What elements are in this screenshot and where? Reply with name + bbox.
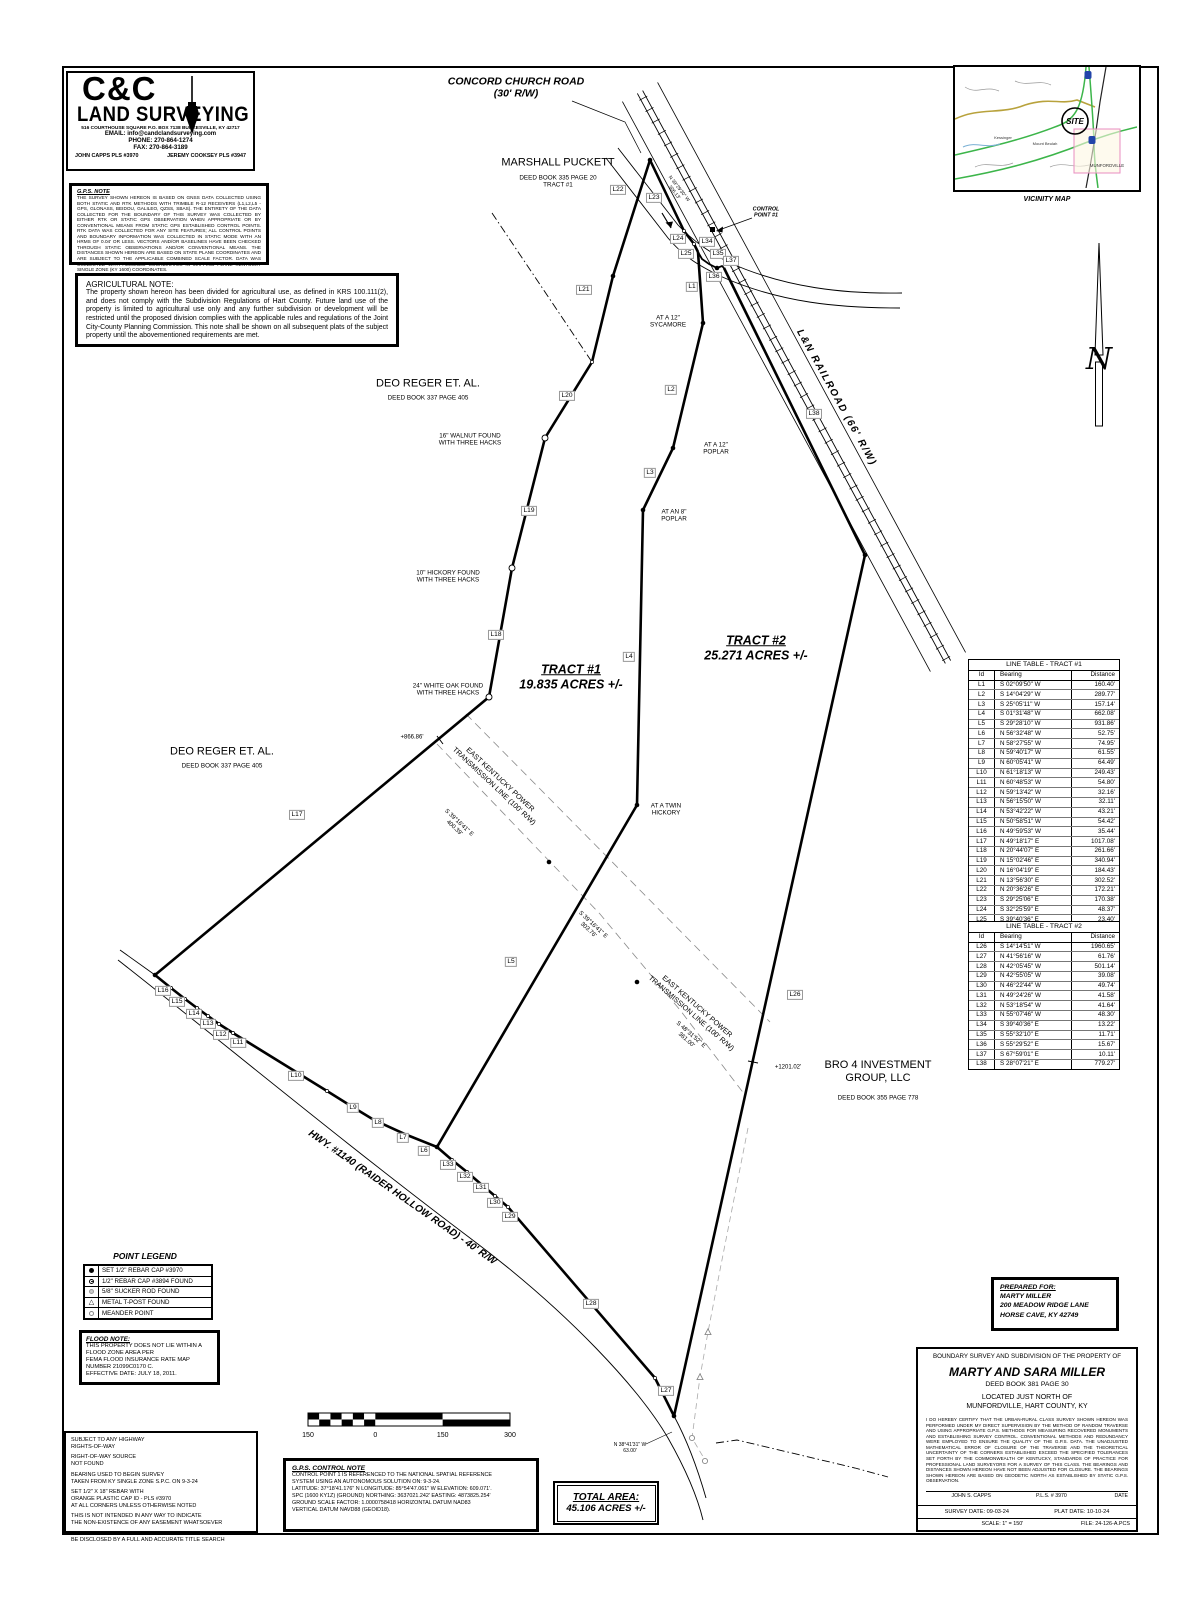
map-label-line: POINT #1 <box>753 213 780 219</box>
company-name-line2: LAND SURVEYING <box>77 101 253 126</box>
title-block: BOUNDARY SURVEY AND SUBDIVISION OF THE P… <box>916 1347 1138 1532</box>
line-id-label-L10: L10 <box>288 1071 304 1081</box>
legend-label: METAL T-POST FOUND <box>99 1299 170 1306</box>
note-line: THE NON-EXISTENCE OF ANY EASEMENT WHATSO… <box>71 1520 251 1527</box>
interstate-shield-icon <box>1089 136 1096 144</box>
line-id-label-L7: L7 <box>397 1133 409 1143</box>
line-id-label-L11: L11 <box>230 1038 246 1048</box>
owner-deo-reger-2-deed: DEED BOOK 337 PAGE 405 <box>182 762 263 769</box>
vicinity-map-caption: VICINITY MAP <box>953 196 1141 203</box>
surveyor-certification: I DO HEREBY CERTIFY THAT THE URBAN-RURAL… <box>918 1417 1136 1484</box>
location-line2: MUNFORDVILLE, HART COUNTY, KY <box>918 1402 1136 1411</box>
control-point-label: CONTROLPOINT #1 <box>753 207 780 220</box>
line-id-label-L13: L13 <box>200 1019 216 1029</box>
line-id-label-L32: L32 <box>457 1172 473 1182</box>
road-bearing-bottom: N 38°41'31" W63.00' <box>614 1443 647 1455</box>
legend-label: 5/8" SUCKER ROD FOUND <box>99 1288 180 1295</box>
map-label-line: BRO 4 INVESTMENT <box>825 1059 932 1072</box>
vicinity-map-drawing: SITEKessingerMount BeulahMUNFORDVILLE <box>955 67 1137 188</box>
line-id-label-L19: L19 <box>521 506 537 516</box>
road-name-concord: CONCORD CHURCH ROAD(30' R/W) <box>448 76 585 101</box>
distance-tick-1201: +1201.02' <box>775 1064 801 1071</box>
monument-white-oak: 24" WHITE OAK FOUNDWITH THREE HACKS <box>413 683 483 698</box>
sucker-rod-icon <box>85 1287 99 1297</box>
agricultural-note-title: AGRICULTURAL NOTE: <box>86 280 388 289</box>
agricultural-note-body: The property shown hereon has been divid… <box>86 289 388 341</box>
general-note: THIS IS NOT INTENDED IN ANY WAY TO INDIC… <box>71 1513 251 1526</box>
owner-bro4-deed: DEED BOOK 355 PAGE 778 <box>838 1094 919 1101</box>
plat-date: PLAT DATE: 10-10-24 <box>1054 1509 1109 1515</box>
surveyor-logo-block: C&C LAND SURVEYING 516 COURTHOUSE SQUARE… <box>66 71 255 171</box>
legend-row: MEANDER POINT <box>85 1308 211 1318</box>
location-line1: LOCATED JUST NORTH OF <box>918 1393 1136 1402</box>
site-label: SITE <box>1066 117 1084 126</box>
surveyor-name-1: JOHN CAPPS PLS #3970 <box>75 153 139 159</box>
line-id-label-L29: L29 <box>502 1212 518 1222</box>
line-id-label-L37: L37 <box>723 256 739 266</box>
vicinity-town-label: MUNFORDVILLE <box>1090 163 1124 168</box>
general-note: BEARING USED TO BEGIN SURVEYTAKEN FROM K… <box>71 1472 251 1485</box>
line-id-label-L12: L12 <box>213 1030 229 1040</box>
line-id-label-L8: L8 <box>372 1118 384 1128</box>
owner-bro4: BRO 4 INVESTMENTGROUP, LLC <box>825 1059 932 1085</box>
line-id-label-L23: L23 <box>646 193 662 203</box>
map-label-line: WITH THREE HACKS <box>416 577 480 584</box>
line-id-label-L14: L14 <box>186 1009 202 1019</box>
file-name: FILE: 24-126-A.PCS <box>1081 1521 1130 1527</box>
gps-control-line: SPC (1600 KY1Z) (GROUND) NORTHING: 36370… <box>292 1493 530 1500</box>
monument-hickory-10: 10" HICKORY FOUNDWITH THREE HACKS <box>416 570 480 585</box>
map-label-line: DEED BOOK 335 PAGE 20 <box>519 175 596 182</box>
note-line: BE DISCLOSED BY A FULL AND ACCURATE TITL… <box>71 1537 251 1544</box>
line-id-label-L17: L17 <box>289 810 305 820</box>
road-bearing-top: N 39°29'30" W306.13' <box>662 175 690 207</box>
railroad-name: L&N RAILROAD (66' R/W) <box>793 328 878 469</box>
map-label-line: WITH THREE HACKS <box>439 440 502 447</box>
map-label-line: AT AN 8" <box>661 509 687 516</box>
line-id-label-L31: L31 <box>473 1183 489 1193</box>
client-address-2: HORSE CAVE, KY 42749 <box>1000 1311 1110 1320</box>
note-line: THIS SURVEY IS SUBJECT TO ANY AND ALL FA… <box>71 1531 251 1538</box>
meander-icon <box>85 1308 99 1318</box>
t-post-icon: △ <box>85 1298 99 1308</box>
signature-name: JOHN S. CAPPS <box>926 1493 1017 1499</box>
map-label-line: 25.271 ACRES +/- <box>704 648 807 663</box>
line-id-label-L30: L30 <box>487 1198 503 1208</box>
survey-date: SURVEY DATE: 09-03-24 <box>945 1509 1009 1515</box>
line-id-label-L20: L20 <box>559 391 575 401</box>
monument-sycamore: AT A 12"SYCAMORE <box>650 315 686 330</box>
map-label-line: POPLAR <box>703 449 729 456</box>
distance-tick-866: +866.86' <box>400 734 423 741</box>
line-id-label-L28: L28 <box>583 1299 599 1309</box>
line-id-label-L34: L34 <box>699 237 715 247</box>
line-id-label-L9: L9 <box>347 1103 359 1113</box>
gps-control-line: SYSTEM USING AN AUTONOMOUS SOLUTION ON: … <box>292 1479 530 1486</box>
note-line: THIS IS NOT INTENDED IN ANY WAY TO INDIC… <box>71 1513 251 1520</box>
gps-control-note-title: G.P.S. CONTROL NOTE <box>292 1465 530 1472</box>
found-rebar-icon <box>85 1277 99 1287</box>
map-label-line: 24" WHITE OAK FOUND <box>413 683 483 690</box>
map-label-line: 19.835 ACRES +/- <box>519 677 622 692</box>
gps-note-box: G.P.S. NOTE THE SURVEY SHOWN HEREON IS B… <box>69 183 269 265</box>
t-post-glyph: △ <box>89 1299 94 1306</box>
line-id-label-L5: L5 <box>505 957 517 967</box>
owner-marshall-puckett-deed: DEED BOOK 335 PAGE 20TRACT #1 <box>519 175 596 190</box>
map-label-line: AT A 12" <box>703 442 729 449</box>
title-block-header: BOUNDARY SURVEY AND SUBDIVISION OF THE P… <box>918 1353 1136 1360</box>
legend-label: 1/2" REBAR CAP #3894 FOUND <box>99 1278 193 1285</box>
map-label-line: AT A TWIN <box>651 803 681 810</box>
owner-marshall-puckett: MARSHALL PUCKETT <box>501 157 614 170</box>
vicinity-town-label: Kessinger <box>994 135 1012 140</box>
signature-date-label: DATE <box>1086 1493 1128 1499</box>
legend-label: MEANDER POINT <box>99 1310 154 1317</box>
gps-control-line: GROUND SCALE FACTOR: 1.0000758418 HORIZO… <box>292 1500 530 1507</box>
map-label-line: WITH THREE HACKS <box>413 690 483 697</box>
map-label-line: EAST KENTUCKY POWER <box>652 967 741 1046</box>
line-id-label-L16: L16 <box>155 986 171 996</box>
map-label-line: CONCORD CHURCH ROAD <box>448 76 585 88</box>
map-label-line: TRACT #1 <box>519 182 596 189</box>
map-label-line: TRACT #1 <box>519 662 622 677</box>
road-name-hwy1140: HWY. #1140 (RAIDER HOLLOW ROAD) - 40' R/… <box>306 1128 499 1268</box>
general-note: SET 1/2" X 18" REBAR WITHORANGE PLASTIC … <box>71 1489 251 1509</box>
monument-twin-hickory: AT A TWINHICKORY <box>651 803 681 818</box>
line-id-label-L36: L36 <box>706 272 722 282</box>
flood-note-body: THIS PROPERTY DOES NOT LIE WITHIN AFLOOD… <box>86 1343 213 1378</box>
map-label-line: 63.00' <box>614 1449 647 1455</box>
property-owner: MARTY AND SARA MILLER <box>918 1365 1136 1379</box>
drawing-scale: SCALE: 1" = 150' <box>924 1521 1081 1527</box>
note-line: RIGHTS-OF-WAY <box>71 1444 251 1451</box>
flood-note-line: NUMBER 21099C0170 C. <box>86 1364 213 1371</box>
transmission-bearing-1: S 39°16'41" E400.39' <box>438 808 475 844</box>
point-legend-title: POINT LEGEND <box>83 1251 207 1261</box>
surveyor-name-2: JEREMY COOKSEY PLS #3947 <box>167 153 246 159</box>
line-id-label-L25: L25 <box>678 249 694 259</box>
flood-note-line: THIS PROPERTY DOES NOT LIE WITHIN A <box>86 1343 213 1350</box>
gps-note-body: THE SURVEY SHOWN HEREON IS BASED ON GNSS… <box>77 195 261 273</box>
map-label-line: +866.86' <box>400 734 423 741</box>
map-label-line: POPLAR <box>661 516 687 523</box>
company-name-line1: C&C <box>82 75 253 103</box>
legend-row: 5/8" SUCKER ROD FOUND <box>85 1287 211 1298</box>
note-line: TAKEN FROM KY SINGLE ZONE S.P.C. ON 9-3-… <box>71 1479 251 1486</box>
line-id-label-L15: L15 <box>169 997 185 1007</box>
scale-bar-number: 300 <box>504 1432 516 1439</box>
tract1-label: TRACT #119.835 ACRES +/- <box>519 662 622 692</box>
note-line: SET 1/2" X 18" REBAR WITH <box>71 1489 251 1496</box>
line-id-label-L3: L3 <box>644 468 656 478</box>
line-id-label-L2: L2 <box>665 385 677 395</box>
general-note: THIS SURVEY IS SUBJECT TO ANY AND ALL FA… <box>71 1531 251 1544</box>
gps-control-line: VERTICAL DATUM NAVD88 (GEOID18). <box>292 1507 530 1514</box>
flood-note-line: EFFECTIVE DATE: JULY 18, 2011. <box>86 1371 213 1378</box>
legend-row: SET 1/2" REBAR CAP #3970 <box>85 1266 211 1277</box>
interstate-shield-icon <box>1085 71 1092 79</box>
map-label-line: TRANSMISSION LINE (100' R/W) <box>451 745 538 827</box>
legend-row: 1/2" REBAR CAP #3894 FOUND <box>85 1277 211 1288</box>
note-line: ORANGE PLASTIC CAP ID - PLS #3970 <box>71 1496 251 1503</box>
signature-pls: P.L.S. # 3970 <box>1017 1493 1087 1499</box>
found-rebar-glyph <box>89 1279 94 1284</box>
map-label-line: MARSHALL PUCKETT <box>501 157 614 170</box>
line-id-label-L21: L21 <box>576 285 592 295</box>
map-label-line: HWY. #1140 (RAIDER HOLLOW ROAD) - 40' R/… <box>306 1128 499 1268</box>
set-rebar-glyph <box>89 1268 94 1273</box>
transmission-line-1: EAST KENTUCKY POWERTRANSMISSION LINE (10… <box>451 739 544 827</box>
map-label-line: DEED BOOK 337 PAGE 405 <box>388 394 469 401</box>
map-label-line: HICKORY <box>651 810 681 817</box>
gps-control-note-box: G.P.S. CONTROL NOTE CONTROL POINT 1 IS R… <box>283 1458 539 1532</box>
company-fax: FAX: 270-864-3189 <box>68 144 253 151</box>
deed-reference: DEED BOOK 381 PAGE 30 <box>918 1381 1136 1388</box>
vicinity-map: SITEKessingerMount BeulahMUNFORDVILLE <box>953 65 1141 192</box>
meander-glyph <box>89 1311 94 1316</box>
flood-note-box: FLOOD NOTE: THIS PROPERTY DOES NOT LIE W… <box>79 1330 220 1385</box>
sucker-rod-glyph <box>89 1289 94 1294</box>
map-label-line: 10" HICKORY FOUND <box>416 570 480 577</box>
line-id-label-L27: L27 <box>658 1386 674 1396</box>
map-label-line: EAST KENTUCKY POWER <box>457 739 544 821</box>
map-label-line: SYCAMORE <box>650 322 686 329</box>
plat-sheet: N CONCORD CHURCH ROAD(30' R/W)MARSHALL P… <box>0 0 1200 1600</box>
map-label-line: DEO REGER ET. AL. <box>170 746 274 759</box>
scale-bar-number: 150 <box>437 1432 449 1439</box>
map-label-line: GROUP, LLC <box>825 1072 932 1085</box>
line-id-label-L24: L24 <box>670 234 686 244</box>
prepared-for-box: PREPARED FOR: MARTY MILLER 200 MEADOW RI… <box>991 1277 1119 1331</box>
note-line: AT ALL CORNERS UNLESS OTHERWISE NOTED <box>71 1503 251 1510</box>
total-area-value: 45.106 ACRES +/- <box>566 1503 645 1514</box>
note-line: NOT FOUND <box>71 1461 251 1468</box>
legend-label: SET 1/2" REBAR CAP #3970 <box>99 1267 183 1274</box>
line-id-label-L33: L33 <box>440 1160 456 1170</box>
total-area-title: TOTAL AREA: <box>573 1492 639 1503</box>
scale-bar-number: 0 <box>373 1432 377 1439</box>
flood-note-title: FLOOD NOTE: <box>86 1336 213 1343</box>
point-legend-table: SET 1/2" REBAR CAP #39701/2" REBAR CAP #… <box>83 1264 213 1320</box>
gps-control-line: CONTROL POINT 1 IS REFERENCED TO THE NAT… <box>292 1472 530 1479</box>
owner-deo-reger-2: DEO REGER ET. AL. <box>170 746 274 759</box>
general-notes-box: SUBJECT TO ANY HIGHWAYRIGHTS-OF-WAYRIGHT… <box>64 1431 258 1533</box>
legend-row: △METAL T-POST FOUND <box>85 1298 211 1309</box>
map-label-line: TRACT #2 <box>704 633 807 648</box>
line-id-label-L18: L18 <box>488 630 504 640</box>
map-label-line: AT A 12" <box>650 315 686 322</box>
general-note: RIGHT-OF-WAY SOURCENOT FOUND <box>71 1454 251 1467</box>
gps-control-line: LATITUDE: 37°18'41.176" N LONGITUDE: 85°… <box>292 1486 530 1493</box>
note-line: RIGHT-OF-WAY SOURCE <box>71 1454 251 1461</box>
client-name: MARTY MILLER <box>1000 1292 1110 1301</box>
map-label-line: (30' R/W) <box>448 88 585 100</box>
monument-walnut: 16" WALNUT FOUNDWITH THREE HACKS <box>439 433 502 448</box>
map-label-line: +1201.02' <box>775 1064 801 1071</box>
company-phone: PHONE: 270-864-1274 <box>68 137 253 144</box>
set-rebar-icon <box>85 1266 99 1276</box>
scale-bar-number: 150 <box>302 1432 314 1439</box>
map-label-line: 16" WALNUT FOUND <box>439 433 502 440</box>
prepared-for-title: PREPARED FOR: <box>1000 1283 1110 1292</box>
total-area-box: TOTAL AREA: 45.106 ACRES +/- <box>553 1481 659 1525</box>
note-line: BEARING USED TO BEGIN SURVEY <box>71 1472 251 1479</box>
tract2-label: TRACT #225.271 ACRES +/- <box>704 633 807 663</box>
line-id-label-L38: L38 <box>806 409 822 419</box>
line-id-label-L1: L1 <box>686 282 698 292</box>
owner-deo-reger-1-deed: DEED BOOK 337 PAGE 405 <box>388 394 469 401</box>
line-id-label-L26: L26 <box>787 990 803 1000</box>
map-label-line: DEO REGER ET. AL. <box>376 378 480 391</box>
owner-deo-reger-1: DEO REGER ET. AL. <box>376 378 480 391</box>
gps-control-note-body: CONTROL POINT 1 IS REFERENCED TO THE NAT… <box>292 1472 530 1514</box>
flood-note-line: FLOOD ZONE AREA PER <box>86 1350 213 1357</box>
vicinity-town-label: Mount Beulah <box>1033 141 1058 146</box>
map-label-line: DEED BOOK 337 PAGE 405 <box>182 762 263 769</box>
line-id-label-L22: L22 <box>610 185 626 195</box>
map-label-line: L&N RAILROAD (66' R/W) <box>793 328 878 469</box>
client-address-1: 200 MEADOW RIDGE LANE <box>1000 1301 1110 1310</box>
line-id-label-L4: L4 <box>623 652 635 662</box>
flood-note-line: FEMA FLOOD INSURANCE RATE MAP <box>86 1357 213 1364</box>
agricultural-note-box: AGRICULTURAL NOTE: The property shown he… <box>75 273 399 347</box>
monument-poplar-8: AT AN 8"POPLAR <box>661 509 687 524</box>
map-label-line: DEED BOOK 355 PAGE 778 <box>838 1094 919 1101</box>
vicinity-creek <box>963 144 1000 147</box>
transmission-bearing-2: S 39°16'41" E303.76' <box>572 910 609 946</box>
line-id-label-L6: L6 <box>418 1146 430 1156</box>
monument-poplar-12: AT A 12"POPLAR <box>703 442 729 457</box>
